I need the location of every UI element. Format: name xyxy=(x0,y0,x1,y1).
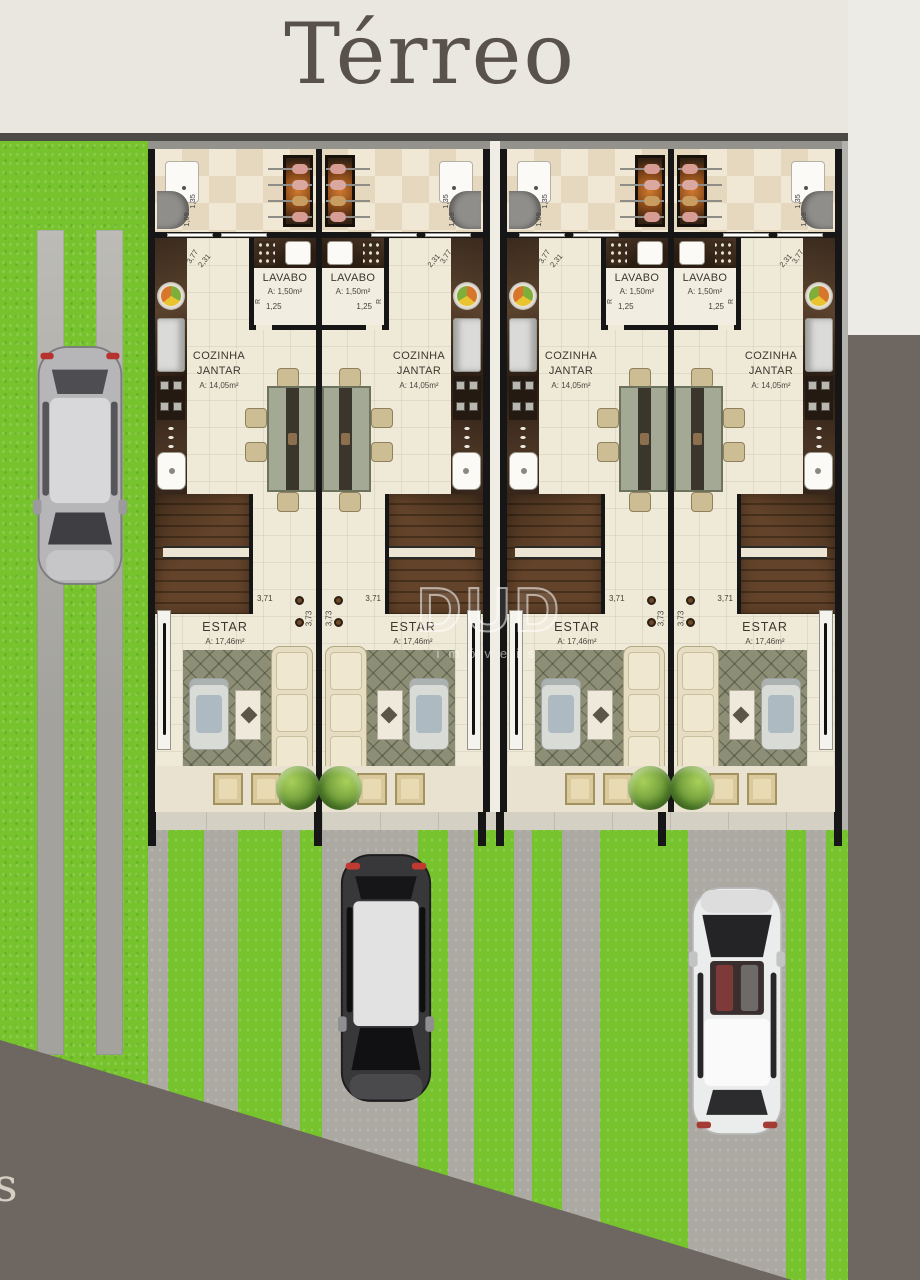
bbq-skewer xyxy=(678,184,722,186)
window xyxy=(777,233,823,237)
sofa-cushion xyxy=(276,652,308,690)
sofa xyxy=(271,646,313,780)
sofa xyxy=(677,646,719,780)
floorplan-page: Térreo 1,35 1,09 LAVABO xyxy=(0,0,920,1280)
coffee-table xyxy=(729,690,755,740)
stove-burner xyxy=(456,402,465,411)
cozinha-line1: COZINHA xyxy=(365,350,473,362)
coffee-table xyxy=(377,690,403,740)
dining-chair xyxy=(691,368,713,388)
estar-area: A: 17,46m² xyxy=(519,637,635,646)
bbq-skewer xyxy=(326,184,370,186)
estar-dim: 3,73 xyxy=(325,611,334,627)
cropped-watermark-letter: s xyxy=(0,1158,18,1212)
estar-name: ESTAR xyxy=(167,620,283,634)
window xyxy=(723,233,769,237)
dining-chair xyxy=(629,492,651,512)
bbq-skewer xyxy=(678,168,722,170)
shrub xyxy=(670,766,714,810)
estar-dim: 3,73 xyxy=(677,611,686,627)
lavabo-vanity xyxy=(674,238,736,268)
tv-panel xyxy=(509,610,523,750)
lavabo-door xyxy=(366,325,382,330)
wash-basin xyxy=(637,241,663,265)
stove-burner xyxy=(821,402,830,411)
sofa-cushion xyxy=(276,694,308,732)
armchair xyxy=(409,678,449,750)
interior-floor: LAVABO A: 1,50m² 1,25 R 3,77 2,31 COZINH… xyxy=(507,238,668,812)
dining-chair xyxy=(245,442,267,462)
estar-dim: 3,71 xyxy=(717,594,733,603)
dining-table xyxy=(322,386,371,492)
stair-landing xyxy=(163,546,249,559)
window xyxy=(371,233,417,237)
terrace-dim: 1,09 xyxy=(534,212,543,227)
lavabo-area: A: 1,50m² xyxy=(606,287,668,296)
page-title: Térreo xyxy=(0,6,860,103)
stove-burner xyxy=(469,402,478,411)
lavabo-vanity xyxy=(254,238,316,268)
ceiling-lamp xyxy=(295,618,304,627)
tv-panel xyxy=(819,610,833,750)
dining-chair xyxy=(371,408,393,428)
dining-table xyxy=(619,386,668,492)
table-runner xyxy=(339,388,352,490)
lavabo-vanity xyxy=(606,238,668,268)
terrace-dim: 1,35 xyxy=(441,194,450,209)
unit-4: 1,35 1,09 LAVABO A: 1,50m² 1,25 R xyxy=(674,149,835,812)
kitchen-sink xyxy=(804,452,833,490)
counter-dots xyxy=(811,424,827,450)
porch xyxy=(674,766,835,812)
terrace-dim: 1,35 xyxy=(793,194,802,209)
estar-area: A: 17,46m² xyxy=(355,637,471,646)
fridge xyxy=(157,318,185,372)
dining-set xyxy=(243,368,316,510)
dining-table xyxy=(267,386,316,492)
window xyxy=(425,233,471,237)
staircase xyxy=(507,494,605,614)
ceiling-lamp xyxy=(647,618,656,627)
wash-basin xyxy=(285,241,311,265)
estar-area: A: 17,46m² xyxy=(707,637,823,646)
ceiling-lamp xyxy=(334,618,343,627)
stove-burner xyxy=(512,402,521,411)
porch-chair xyxy=(565,773,595,805)
stair-landing xyxy=(389,546,475,559)
ceiling-lamp xyxy=(647,596,656,605)
coffee-table xyxy=(587,690,613,740)
lavabo-area: A: 1,50m² xyxy=(674,287,736,296)
dining-chair xyxy=(597,408,619,428)
bbq-skewer xyxy=(268,184,312,186)
bbq-skewer xyxy=(678,216,722,218)
wash-basin xyxy=(327,241,353,265)
estar-name: ESTAR xyxy=(519,620,635,634)
ceiling-lamp xyxy=(295,596,304,605)
lavabo-label: LAVABO xyxy=(322,272,384,284)
staircase xyxy=(385,494,483,614)
wall-stub xyxy=(658,812,666,846)
ceiling-lamp xyxy=(686,618,695,627)
dining-chair xyxy=(277,368,299,388)
lavabo-vanity xyxy=(322,238,384,268)
window xyxy=(167,233,213,237)
window xyxy=(573,233,619,237)
door-swing-label: R xyxy=(255,299,262,304)
table-runner xyxy=(638,388,651,490)
sofa xyxy=(623,646,665,780)
shrub xyxy=(276,766,320,810)
building-gap xyxy=(490,141,500,812)
coffee-table xyxy=(235,690,261,740)
cozinha-dim: 2,31 xyxy=(778,252,794,269)
fruit-bowl xyxy=(805,282,833,310)
black-car-silver-roof xyxy=(338,846,434,1110)
ceiling-lamp xyxy=(334,596,343,605)
dining-chair xyxy=(691,492,713,512)
terrace-dim: 1,09 xyxy=(447,212,456,227)
dining-chair xyxy=(277,492,299,512)
estar-area: A: 17,46m² xyxy=(167,637,283,646)
sofa-cushion xyxy=(682,652,714,690)
lavabo-dim: 1,25 xyxy=(356,302,372,311)
barbecue-grill xyxy=(635,155,665,227)
fruit-bowl xyxy=(453,282,481,310)
terrace-dim: 1,35 xyxy=(188,194,197,209)
terrace: 1,35 1,09 xyxy=(674,149,835,232)
table-runner xyxy=(286,388,299,490)
lavabo-dim: 1,25 xyxy=(708,302,724,311)
white-car xyxy=(688,886,786,1136)
dining-set xyxy=(595,368,668,510)
sofa xyxy=(325,646,367,780)
unit-1: 1,35 1,09 LAVABO A: 1,50m² 1,25 R xyxy=(155,149,316,812)
fruit-bowl xyxy=(509,282,537,310)
sofa-cushion xyxy=(330,652,362,690)
estar-dim: 3,73 xyxy=(656,611,665,627)
door-swing-label: R xyxy=(728,299,735,304)
terrace: 1,35 1,09 xyxy=(322,149,483,232)
sofa-cushion xyxy=(628,694,660,732)
unit-2: 1,35 1,09 LAVABO A: 1,50m² 1,25 R xyxy=(322,149,483,812)
unit-3: 1,35 1,09 LAVABO A: 1,50m² 1,25 R xyxy=(507,149,668,812)
barbecue-grill xyxy=(283,155,313,227)
estar-dim: 3,71 xyxy=(257,594,273,603)
flower-decor xyxy=(257,241,275,265)
flower-decor xyxy=(715,241,733,265)
wall-stub xyxy=(834,812,842,846)
dining-chair xyxy=(629,368,651,388)
dining-table xyxy=(674,386,723,492)
wall-stub xyxy=(148,812,156,846)
counter-dots xyxy=(459,424,475,450)
bbq-skewer xyxy=(620,168,664,170)
bbq-skewer xyxy=(268,168,312,170)
dining-chair xyxy=(723,408,745,428)
bbq-skewer xyxy=(620,184,664,186)
building-b: 1,35 1,09 LAVABO A: 1,50m² 1,25 R xyxy=(500,149,842,812)
armchair xyxy=(761,678,801,750)
front-fence-wall xyxy=(0,133,848,141)
armchair xyxy=(541,678,581,750)
door-swing-label: R xyxy=(376,299,383,304)
lavabo-room: LAVABO A: 1,50m² 1,25 R xyxy=(249,238,316,330)
cozinha-dim: 2,31 xyxy=(426,252,442,269)
bbq-skewer xyxy=(326,216,370,218)
shrub xyxy=(318,766,362,810)
dining-chair xyxy=(723,442,745,462)
bbq-skewer xyxy=(326,200,370,202)
stove-burner xyxy=(808,402,817,411)
porch-chair xyxy=(395,773,425,805)
stair-landing xyxy=(515,546,601,559)
sofa-cushion xyxy=(330,694,362,732)
lavabo-label: LAVABO xyxy=(254,272,316,284)
sofa-cushion xyxy=(628,652,660,690)
interior-floor: LAVABO A: 1,50m² 1,25 R 3,77 2,31 COZINH… xyxy=(155,238,316,812)
flower-decor xyxy=(609,241,627,265)
table-runner xyxy=(691,388,704,490)
estar-dim: 3,71 xyxy=(365,594,381,603)
background-dark xyxy=(848,335,920,1280)
lavabo-label: LAVABO xyxy=(606,272,668,284)
ceiling-lamp xyxy=(686,596,695,605)
terrace-dim: 1,09 xyxy=(799,212,808,227)
tv-panel xyxy=(467,610,481,750)
lavabo-door xyxy=(256,325,272,330)
barbecue-grill xyxy=(325,155,355,227)
shrub xyxy=(628,766,672,810)
lavabo-label: LAVABO xyxy=(674,272,736,284)
lavabo-room: LAVABO A: 1,50m² 1,25 R xyxy=(674,238,741,330)
silver-car xyxy=(33,343,127,588)
porch xyxy=(322,766,483,812)
bbq-skewer xyxy=(620,200,664,202)
wash-basin xyxy=(679,241,705,265)
dining-set xyxy=(322,368,395,510)
lavabo-door xyxy=(608,325,624,330)
wall-stub xyxy=(478,812,486,846)
interior-floor: LAVABO A: 1,50m² 1,25 R 3,77 2,31 COZINH… xyxy=(322,238,483,812)
sofa-cushion xyxy=(682,694,714,732)
background-light xyxy=(848,0,920,335)
stove-burner xyxy=(160,402,169,411)
bbq-skewer xyxy=(326,168,370,170)
lavabo-room: LAVABO A: 1,50m² 1,25 R xyxy=(322,238,389,330)
lavabo-area: A: 1,50m² xyxy=(322,287,384,296)
bbq-skewer xyxy=(268,216,312,218)
estar-name: ESTAR xyxy=(707,620,823,634)
bbq-skewer xyxy=(268,200,312,202)
porch xyxy=(155,766,316,812)
barbecue-grill xyxy=(677,155,707,227)
estar-dim: 3,71 xyxy=(609,594,625,603)
fridge xyxy=(805,318,833,372)
bbq-skewer xyxy=(620,216,664,218)
door-swing-label: R xyxy=(607,299,614,304)
stove-burner xyxy=(173,402,182,411)
window xyxy=(221,233,267,237)
interior-floor: LAVABO A: 1,50m² 1,25 R 3,77 2,31 COZINH… xyxy=(674,238,835,812)
tv-panel xyxy=(157,610,171,750)
dining-chair xyxy=(371,442,393,462)
cozinha-line1: COZINHA xyxy=(717,350,825,362)
lavabo-area: A: 1,50m² xyxy=(254,287,316,296)
fruit-bowl xyxy=(157,282,185,310)
building-a: 1,35 1,09 LAVABO A: 1,50m² 1,25 R xyxy=(148,149,490,812)
dining-chair xyxy=(339,368,361,388)
staircase xyxy=(737,494,835,614)
terrace: 1,35 1,09 xyxy=(155,149,316,232)
stair-landing xyxy=(741,546,827,559)
lavabo-room: LAVABO A: 1,50m² 1,25 R xyxy=(601,238,668,330)
staircase xyxy=(155,494,253,614)
kitchen-sink xyxy=(509,452,538,490)
fridge xyxy=(453,318,481,372)
porch-chair xyxy=(213,773,243,805)
cozinha-line1: COZINHA xyxy=(517,350,625,362)
kitchen-sink xyxy=(452,452,481,490)
terrace: 1,35 1,09 xyxy=(507,149,668,232)
porch-chair xyxy=(747,773,777,805)
armchair xyxy=(189,678,229,750)
dining-chair xyxy=(339,492,361,512)
terrace-dim: 1,35 xyxy=(540,194,549,209)
fridge xyxy=(509,318,537,372)
wall-stub xyxy=(314,812,322,846)
dining-set xyxy=(674,368,747,510)
estar-name: ESTAR xyxy=(355,620,471,634)
counter-dots xyxy=(515,424,531,450)
lavabo-dim: 1,25 xyxy=(266,302,282,311)
stove-burner xyxy=(525,402,534,411)
wall-stub xyxy=(496,812,504,846)
dining-chair xyxy=(245,408,267,428)
counter-dots xyxy=(163,424,179,450)
terrace-dim: 1,09 xyxy=(182,212,191,227)
estar-dim: 3,73 xyxy=(304,611,313,627)
bbq-skewer xyxy=(678,200,722,202)
cozinha-line1: COZINHA xyxy=(165,350,273,362)
dining-chair xyxy=(597,442,619,462)
lavabo-door xyxy=(718,325,734,330)
kitchen-sink xyxy=(157,452,186,490)
porch xyxy=(507,766,668,812)
window xyxy=(519,233,565,237)
flower-decor xyxy=(363,241,381,265)
lavabo-dim: 1,25 xyxy=(618,302,634,311)
